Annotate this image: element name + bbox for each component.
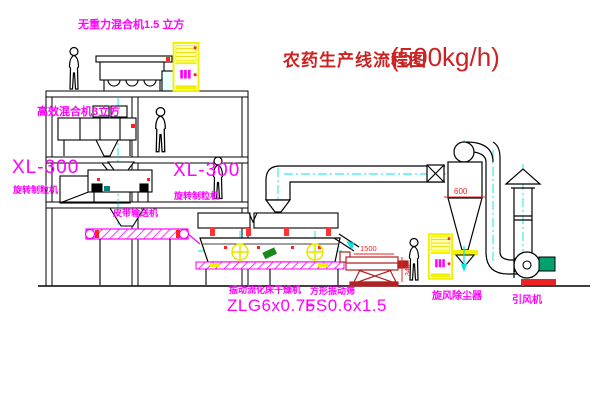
sieve-length-dimension: 1500 [360,244,377,253]
dryer-model-label: ZLG6x0.75 [227,297,316,315]
fluid-bed-dryer [196,213,344,285]
belt-conveyor-label: 皮带输送机 [113,209,158,218]
sieve-height-dimension: 345 [405,264,412,276]
diagram-title-capacity: (500kg/h) [390,44,500,71]
fan-inlet-duct [486,252,518,274]
control-cabinet [174,43,199,91]
gravity-free-mixer [96,56,175,91]
exhaust-duct [266,165,445,212]
cyclone-dimension: 600 [454,187,468,196]
mixer-top-label: 无重力混合机1.5 立方 [78,20,184,32]
belt-conveyor [86,229,201,285]
granulator-left-model: XL-300 [12,158,79,178]
induced-draft-fan [514,252,556,285]
flow-diagram: 600 1500 345 [0,0,600,403]
dryer-name-label: 振动流化床干燥机 [229,286,301,295]
granulator-left-name: 旋转制粒机 [13,186,58,195]
fan-label: 引风机 [512,296,542,307]
person-figure [156,108,166,152]
square-vibrating-sieve [334,234,408,286]
granulator-right-name: 旋转制粒机 [174,192,219,201]
person-figure [70,48,79,90]
control-cabinet [429,234,452,279]
cyclone-label: 旋风除尘器 [432,292,482,303]
mixer-mid-label: 高效混合机3立方 [37,107,120,119]
sieve-model-label: FS0.6x1.5 [305,297,387,315]
granulator-right-model: XL-300 [173,161,240,181]
